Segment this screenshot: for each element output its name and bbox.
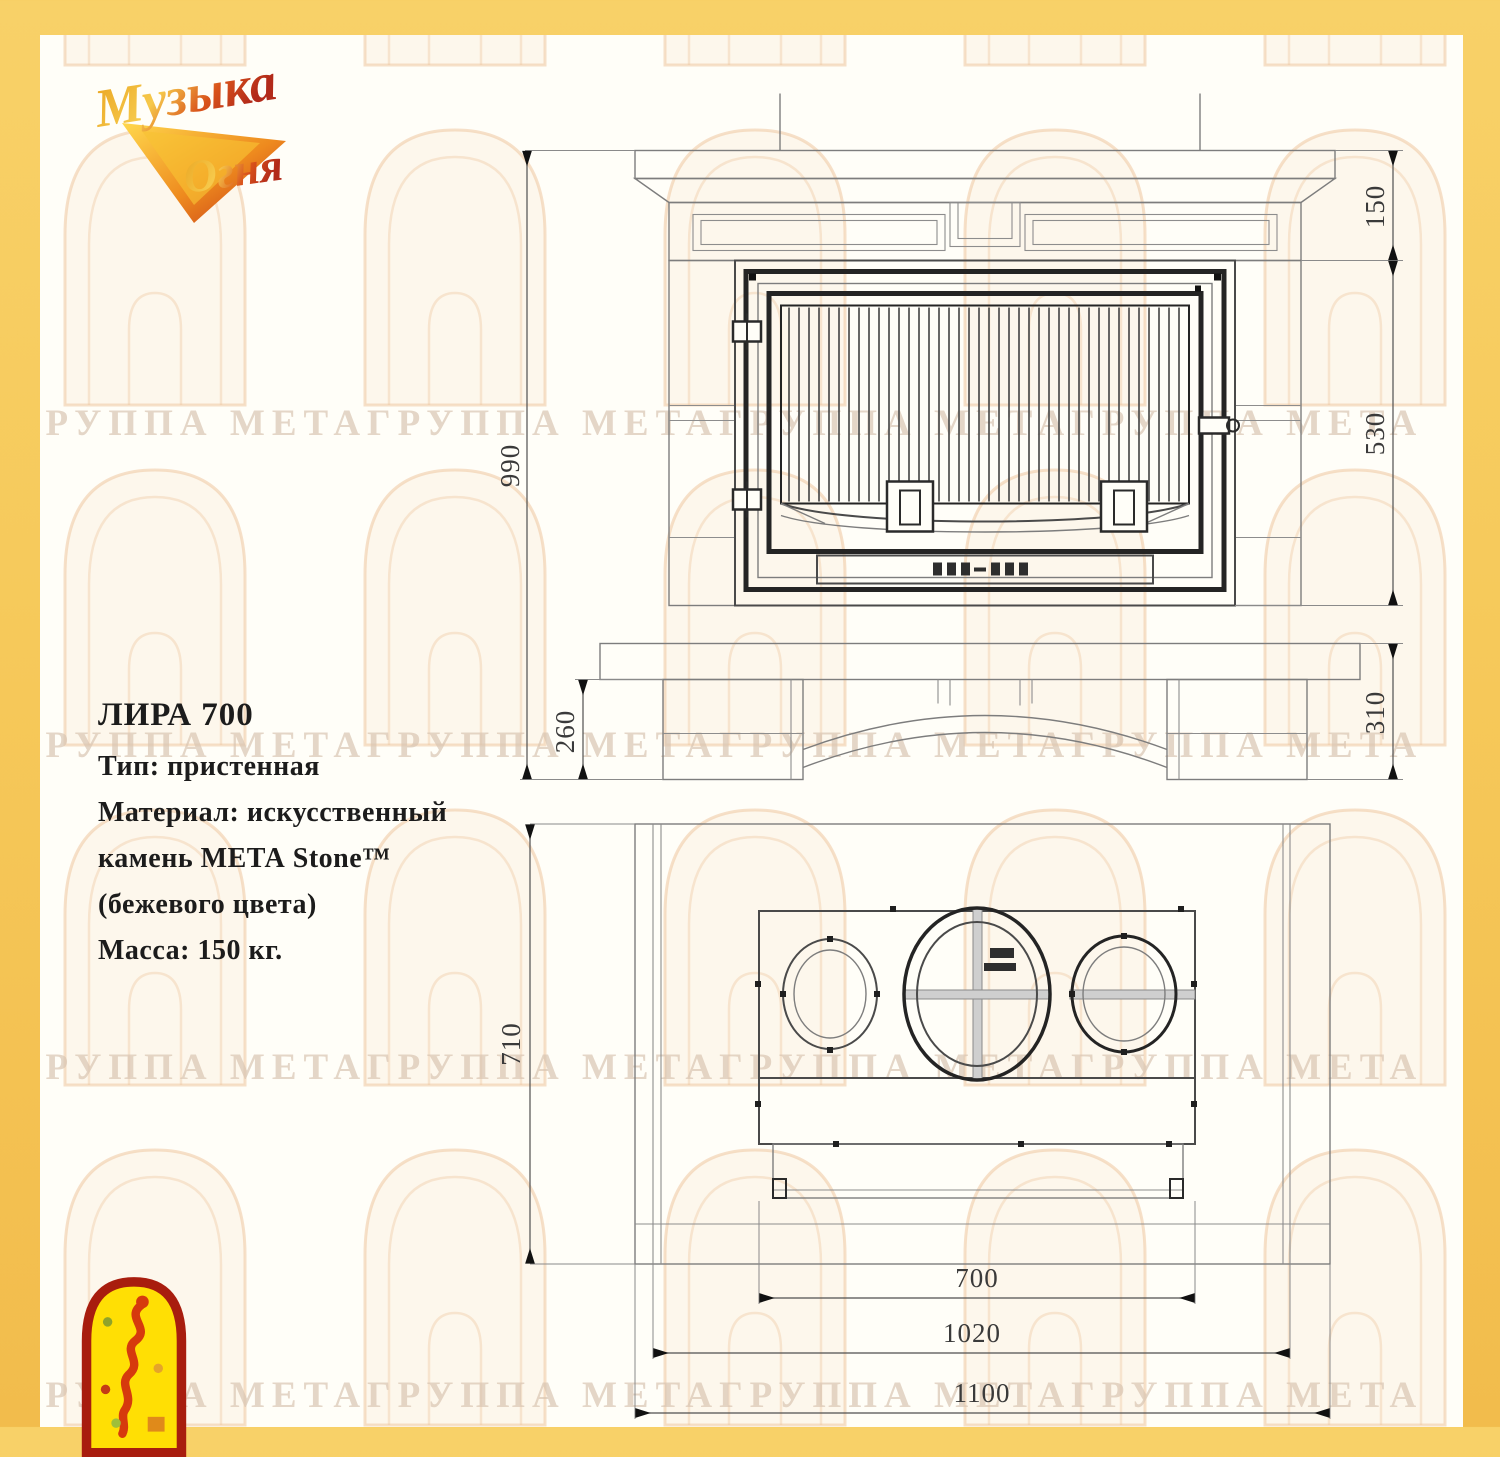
spec-line-type: Тип: пристенная [98, 744, 528, 790]
bench-slab [600, 644, 1360, 680]
spec-line-stone: камень МЕТА Stone™ [98, 836, 528, 882]
dim-top-section: 150 [1360, 185, 1390, 229]
spec-line-color: (бежевого цвета) [98, 882, 528, 928]
content-area: ГРУППА МЕТАГРУППА МЕТАГРУППА МЕТАГРУППА … [40, 35, 1463, 1427]
spec-line-mass: Масса: 150 кг. [98, 928, 528, 974]
dim-base-right: 310 [1360, 691, 1390, 735]
brand-logo: Музыка Огня [90, 71, 370, 231]
dim-overall-width: 1100 [954, 1378, 1011, 1408]
plan-flue-circles [780, 908, 1195, 1080]
firebox [733, 261, 1239, 606]
door-handle [1199, 418, 1239, 434]
dim-depth: 710 [496, 1022, 526, 1066]
dim-body-width: 1020 [943, 1318, 1001, 1348]
dim-firebox-width: 700 [955, 1263, 999, 1293]
panel-marking [933, 563, 1028, 576]
mantel-shelf [635, 151, 1335, 203]
door-feet [887, 482, 1147, 532]
dim-overall-height: 990 [495, 444, 525, 488]
spec-line-material: Материал: искусственный [98, 790, 528, 836]
logo-word-1: Музыка [90, 71, 280, 139]
front-elevation-drawing: 990 260 150 530 310 [495, 83, 1440, 798]
product-title: ЛИРА 700 [98, 697, 528, 734]
chimney-lines [780, 94, 1200, 151]
mascot-logo [76, 1267, 192, 1457]
firebox-lower-panel [817, 556, 1153, 584]
grille-bars [789, 308, 1179, 502]
dim-firebox-height: 530 [1360, 412, 1390, 456]
info-block: ЛИРА 700 Тип: пристенная Материал: искус… [98, 697, 528, 974]
dim-base-left: 260 [550, 710, 580, 754]
plan-dimensions: 710 700 1020 1100 [496, 824, 1330, 1419]
plan-view-drawing: 710 700 1020 1100 [478, 801, 1423, 1456]
base-arch [663, 680, 1307, 780]
frieze-band [669, 203, 1301, 261]
page-background: { "brand": {"logo_word1": "Музыка", "log… [0, 0, 1500, 1427]
